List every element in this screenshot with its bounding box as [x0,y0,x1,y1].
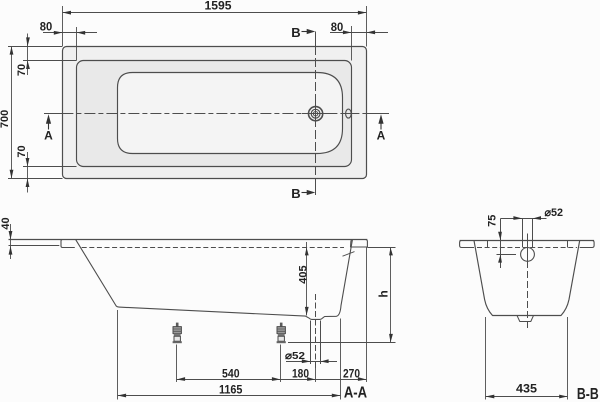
svg-text:A: A [44,129,53,143]
svg-text:B-B: B-B [577,386,599,402]
svg-text:40: 40 [0,217,12,229]
svg-text:180: 180 [292,368,309,380]
svg-text:80: 80 [40,21,53,33]
svg-text:1165: 1165 [219,385,243,397]
svg-text:405: 405 [297,265,309,283]
svg-text:B: B [291,186,300,201]
svg-text:75: 75 [486,215,498,227]
svg-text:70: 70 [16,64,28,76]
svg-text:540: 540 [222,369,240,381]
svg-text:1595: 1595 [205,1,233,13]
svg-text:⌀52: ⌀52 [545,207,564,219]
svg-text:A-A: A-A [344,384,367,401]
svg-text:270: 270 [343,369,360,381]
svg-text:h: h [376,290,390,297]
svg-text:⌀52: ⌀52 [285,350,305,362]
svg-text:435: 435 [516,384,538,396]
svg-text:70: 70 [16,145,28,157]
svg-text:80: 80 [331,22,344,34]
svg-text:B: B [291,25,300,40]
svg-text:A: A [377,129,386,143]
svg-text:700: 700 [0,110,11,128]
